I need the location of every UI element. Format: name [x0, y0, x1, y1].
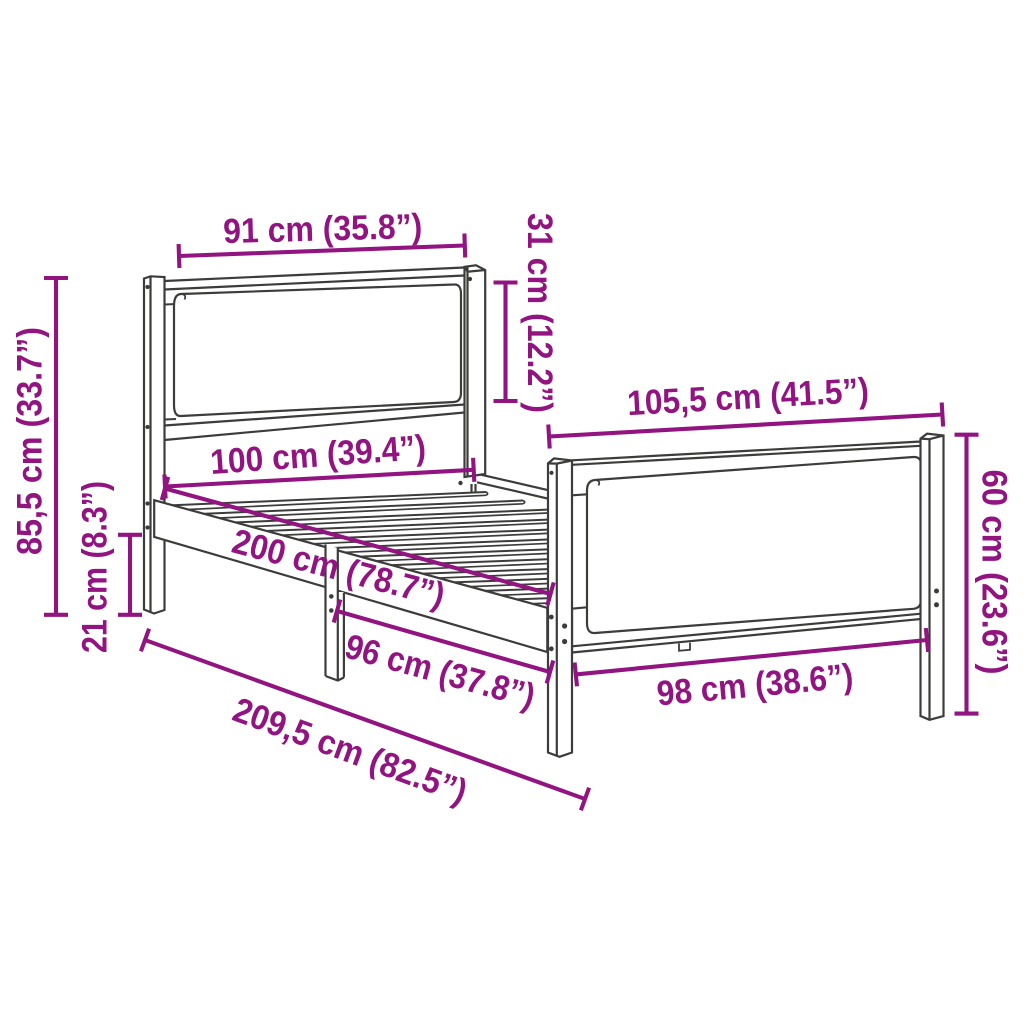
svg-text:85,5 cm (33.7”): 85,5 cm (33.7”) [11, 327, 50, 555]
svg-text:91 cm (35.8”): 91 cm (35.8”) [223, 207, 423, 251]
svg-text:60 cm (23.6”): 60 cm (23.6”) [975, 470, 1014, 675]
svg-text:31 cm (12.2”): 31 cm (12.2”) [520, 213, 559, 413]
svg-text:21 cm (8.3”): 21 cm (8.3”) [76, 481, 115, 653]
